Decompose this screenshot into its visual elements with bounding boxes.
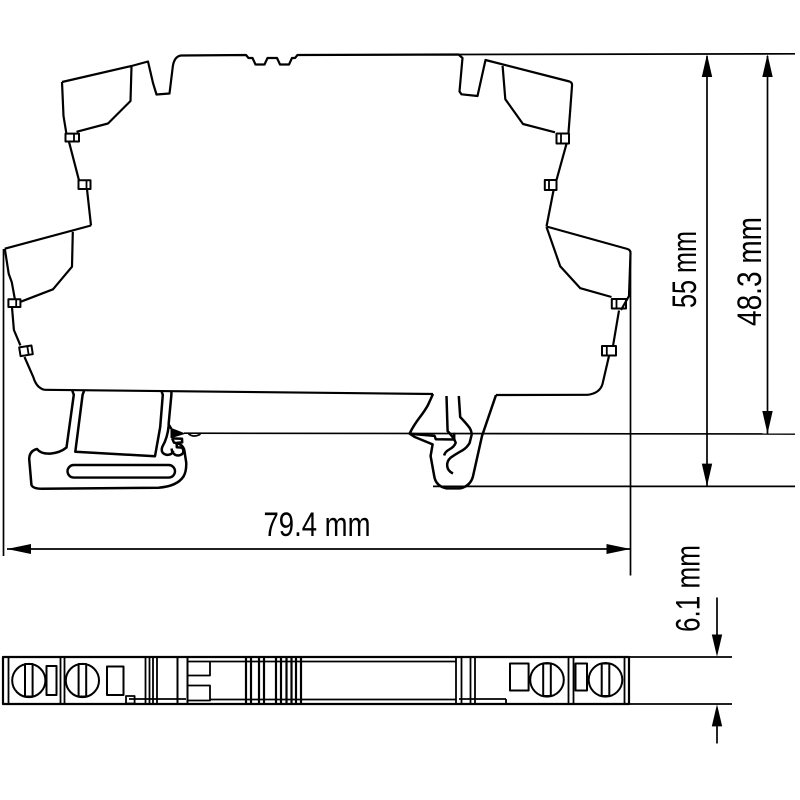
svg-text:48.3 mm: 48.3 mm: [731, 217, 769, 326]
svg-text:79.4 mm: 79.4 mm: [264, 506, 371, 544]
svg-text:55 mm: 55 mm: [666, 231, 704, 308]
svg-text:6.1 mm: 6.1 mm: [670, 545, 708, 632]
